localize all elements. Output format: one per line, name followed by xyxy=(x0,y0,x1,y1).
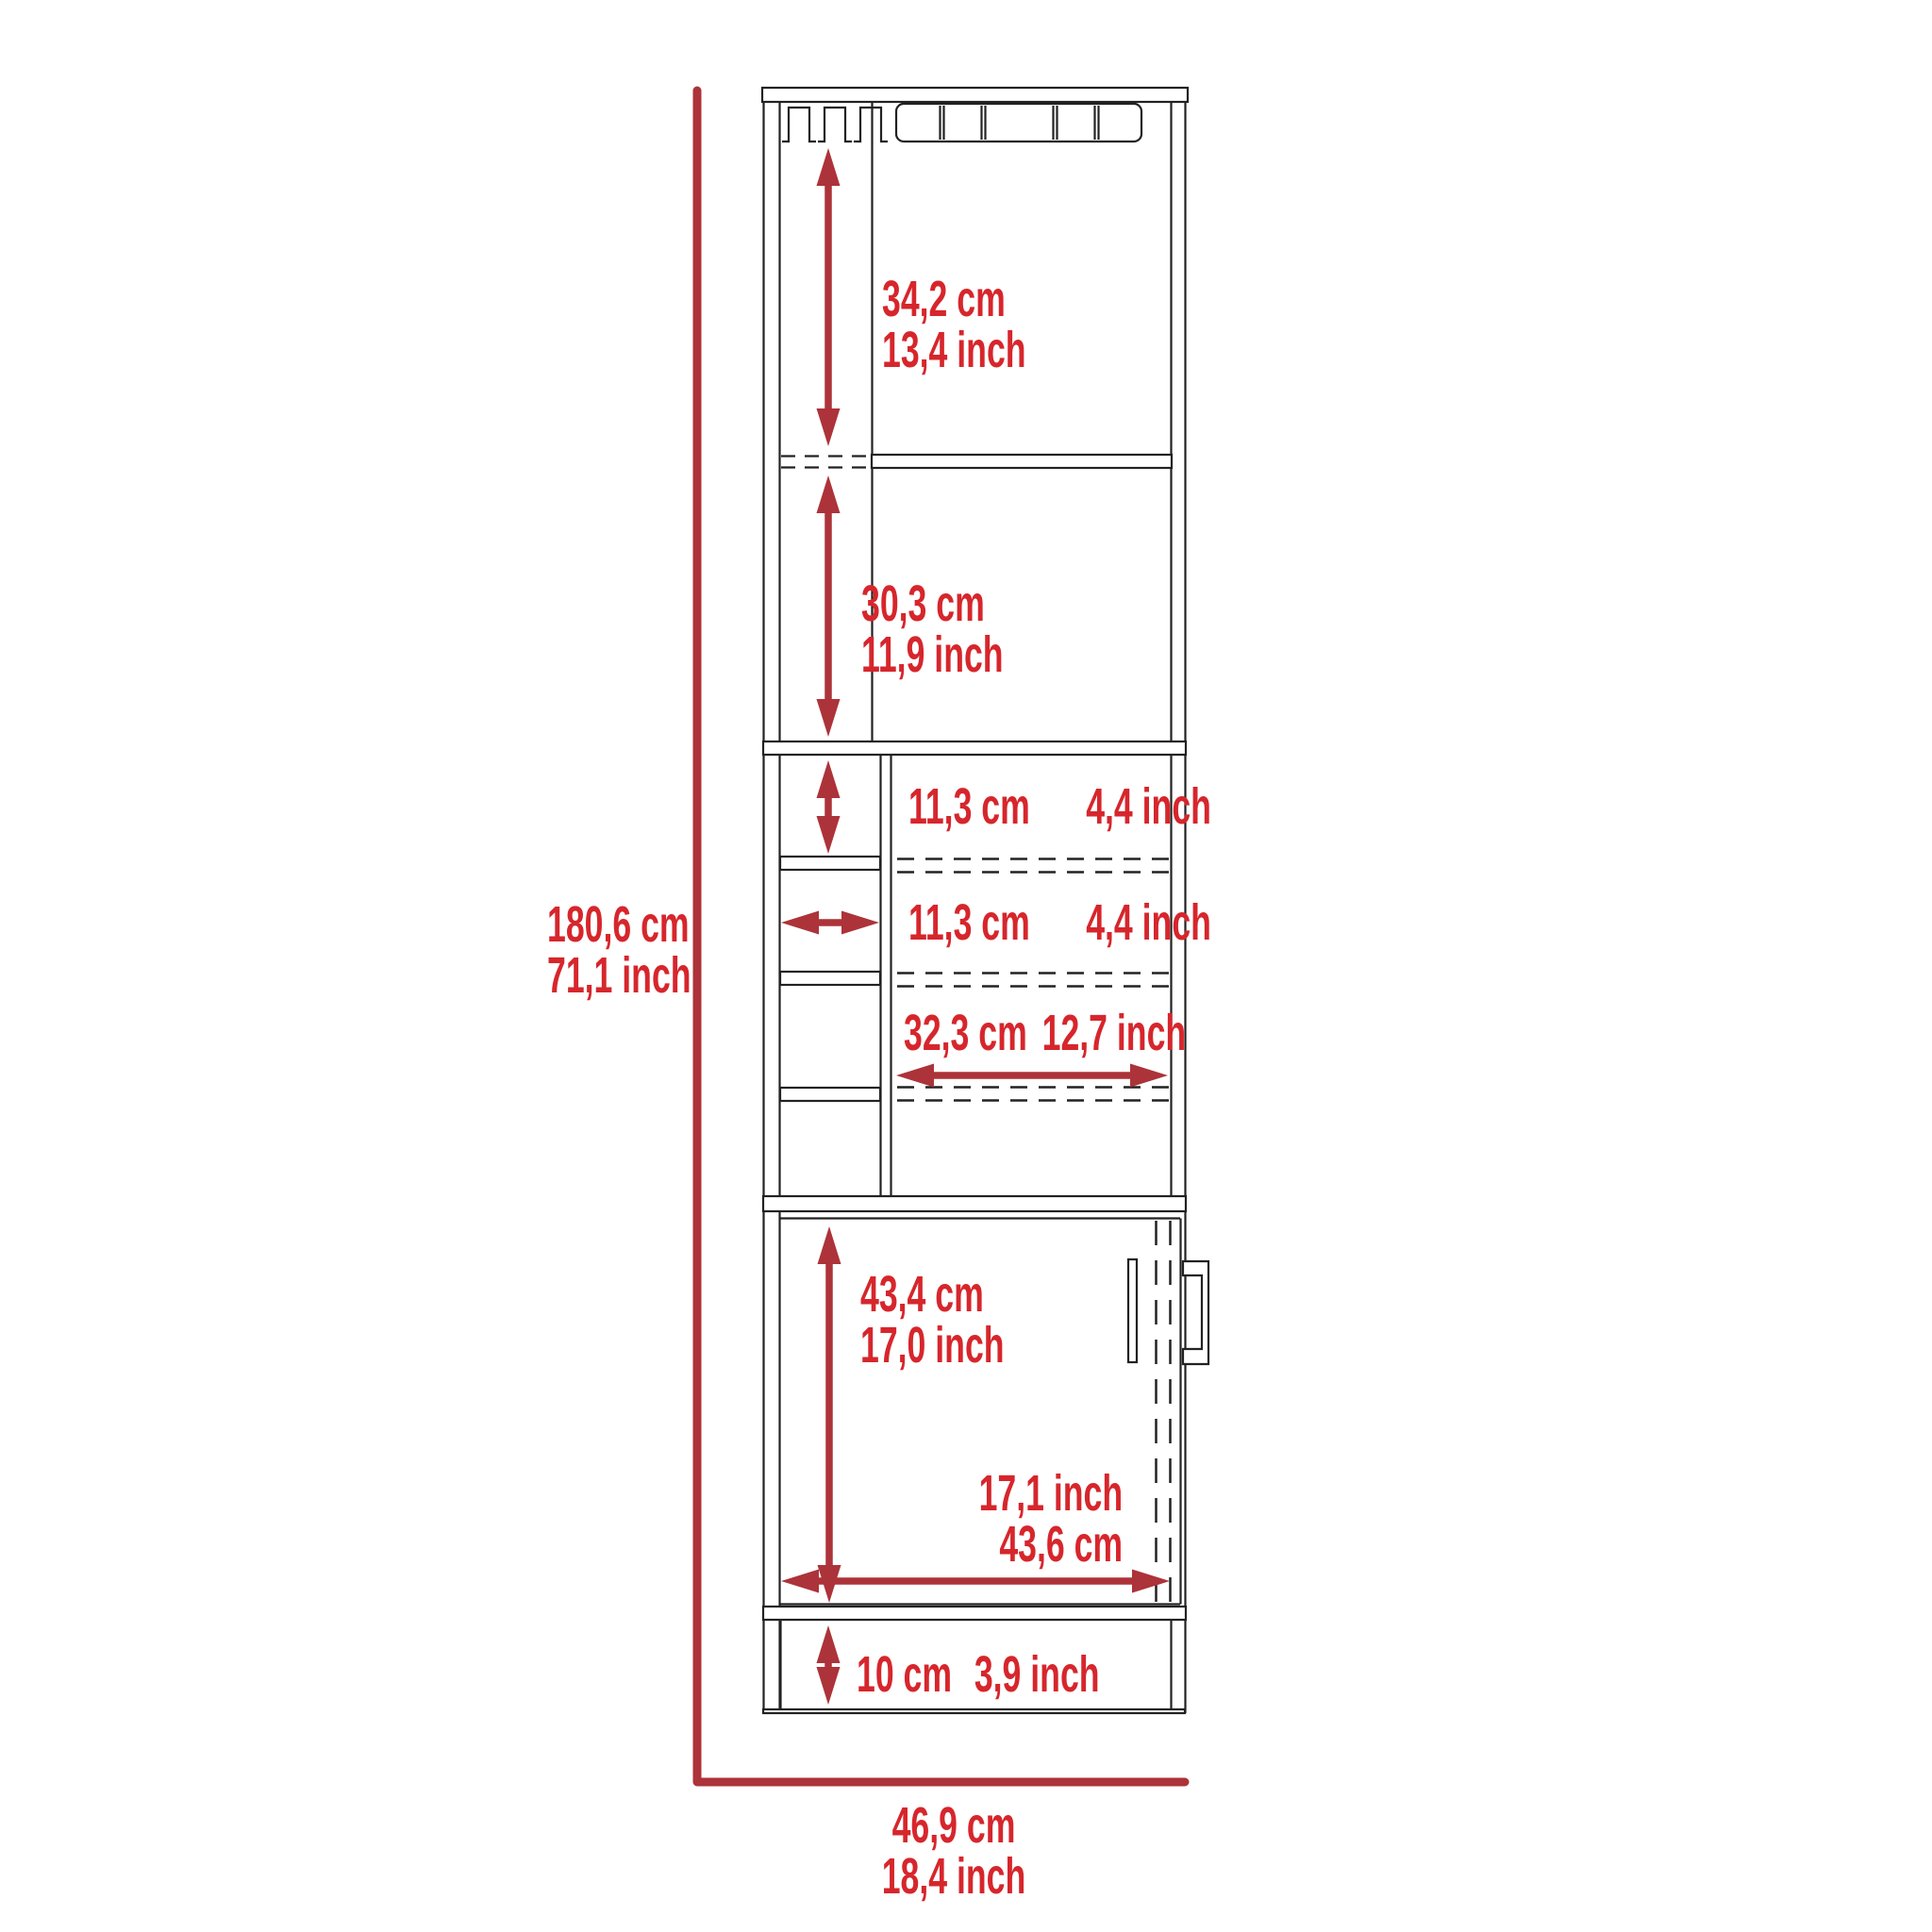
arrow-cubby-width xyxy=(781,911,879,935)
door-handle xyxy=(1128,1259,1208,1364)
door-handle-bracket xyxy=(1183,1261,1208,1364)
label-base-height: 10 cm3,9 inch xyxy=(857,1649,1224,1700)
label-cubby-width: 11,3 cm4,4 inch xyxy=(908,897,1367,948)
label-second-section: 30,3 cm 11,9 inch xyxy=(861,578,1076,680)
arrow-second-section-height xyxy=(817,475,841,737)
label-shelf-width: 32,3 cm12,7 inch xyxy=(904,1008,1331,1058)
arrow-door-width xyxy=(781,1570,1170,1593)
arrow-door-height xyxy=(818,1226,841,1603)
arrow-shelf-width xyxy=(896,1064,1168,1088)
label-overall-height: 180,6 cm 71,1 inch xyxy=(547,899,765,1001)
stemware-rack xyxy=(782,104,1141,142)
label-top-section: 34,2 cm 13,4 inch xyxy=(882,274,1100,375)
arrow-cubby-height xyxy=(817,760,841,854)
arrow-base-height xyxy=(817,1625,841,1705)
arrow-top-section-height xyxy=(817,148,841,446)
diagram-canvas: 180,6 cm 71,1 inch 34,2 cm 13,4 inch 30,… xyxy=(0,0,1932,1932)
label-overall-width: 46,9 cm 18,4 inch xyxy=(844,1800,1062,1902)
door-handle-groove xyxy=(1128,1259,1137,1362)
label-cubby-height: 11,3 cm4,4 inch xyxy=(908,781,1367,832)
label-door-height: 43,4 cm 17,0 inch xyxy=(860,1269,1078,1371)
upper-shelf xyxy=(781,455,1172,468)
label-door-width: 17,1 inch 43,6 cm xyxy=(905,1468,1123,1570)
